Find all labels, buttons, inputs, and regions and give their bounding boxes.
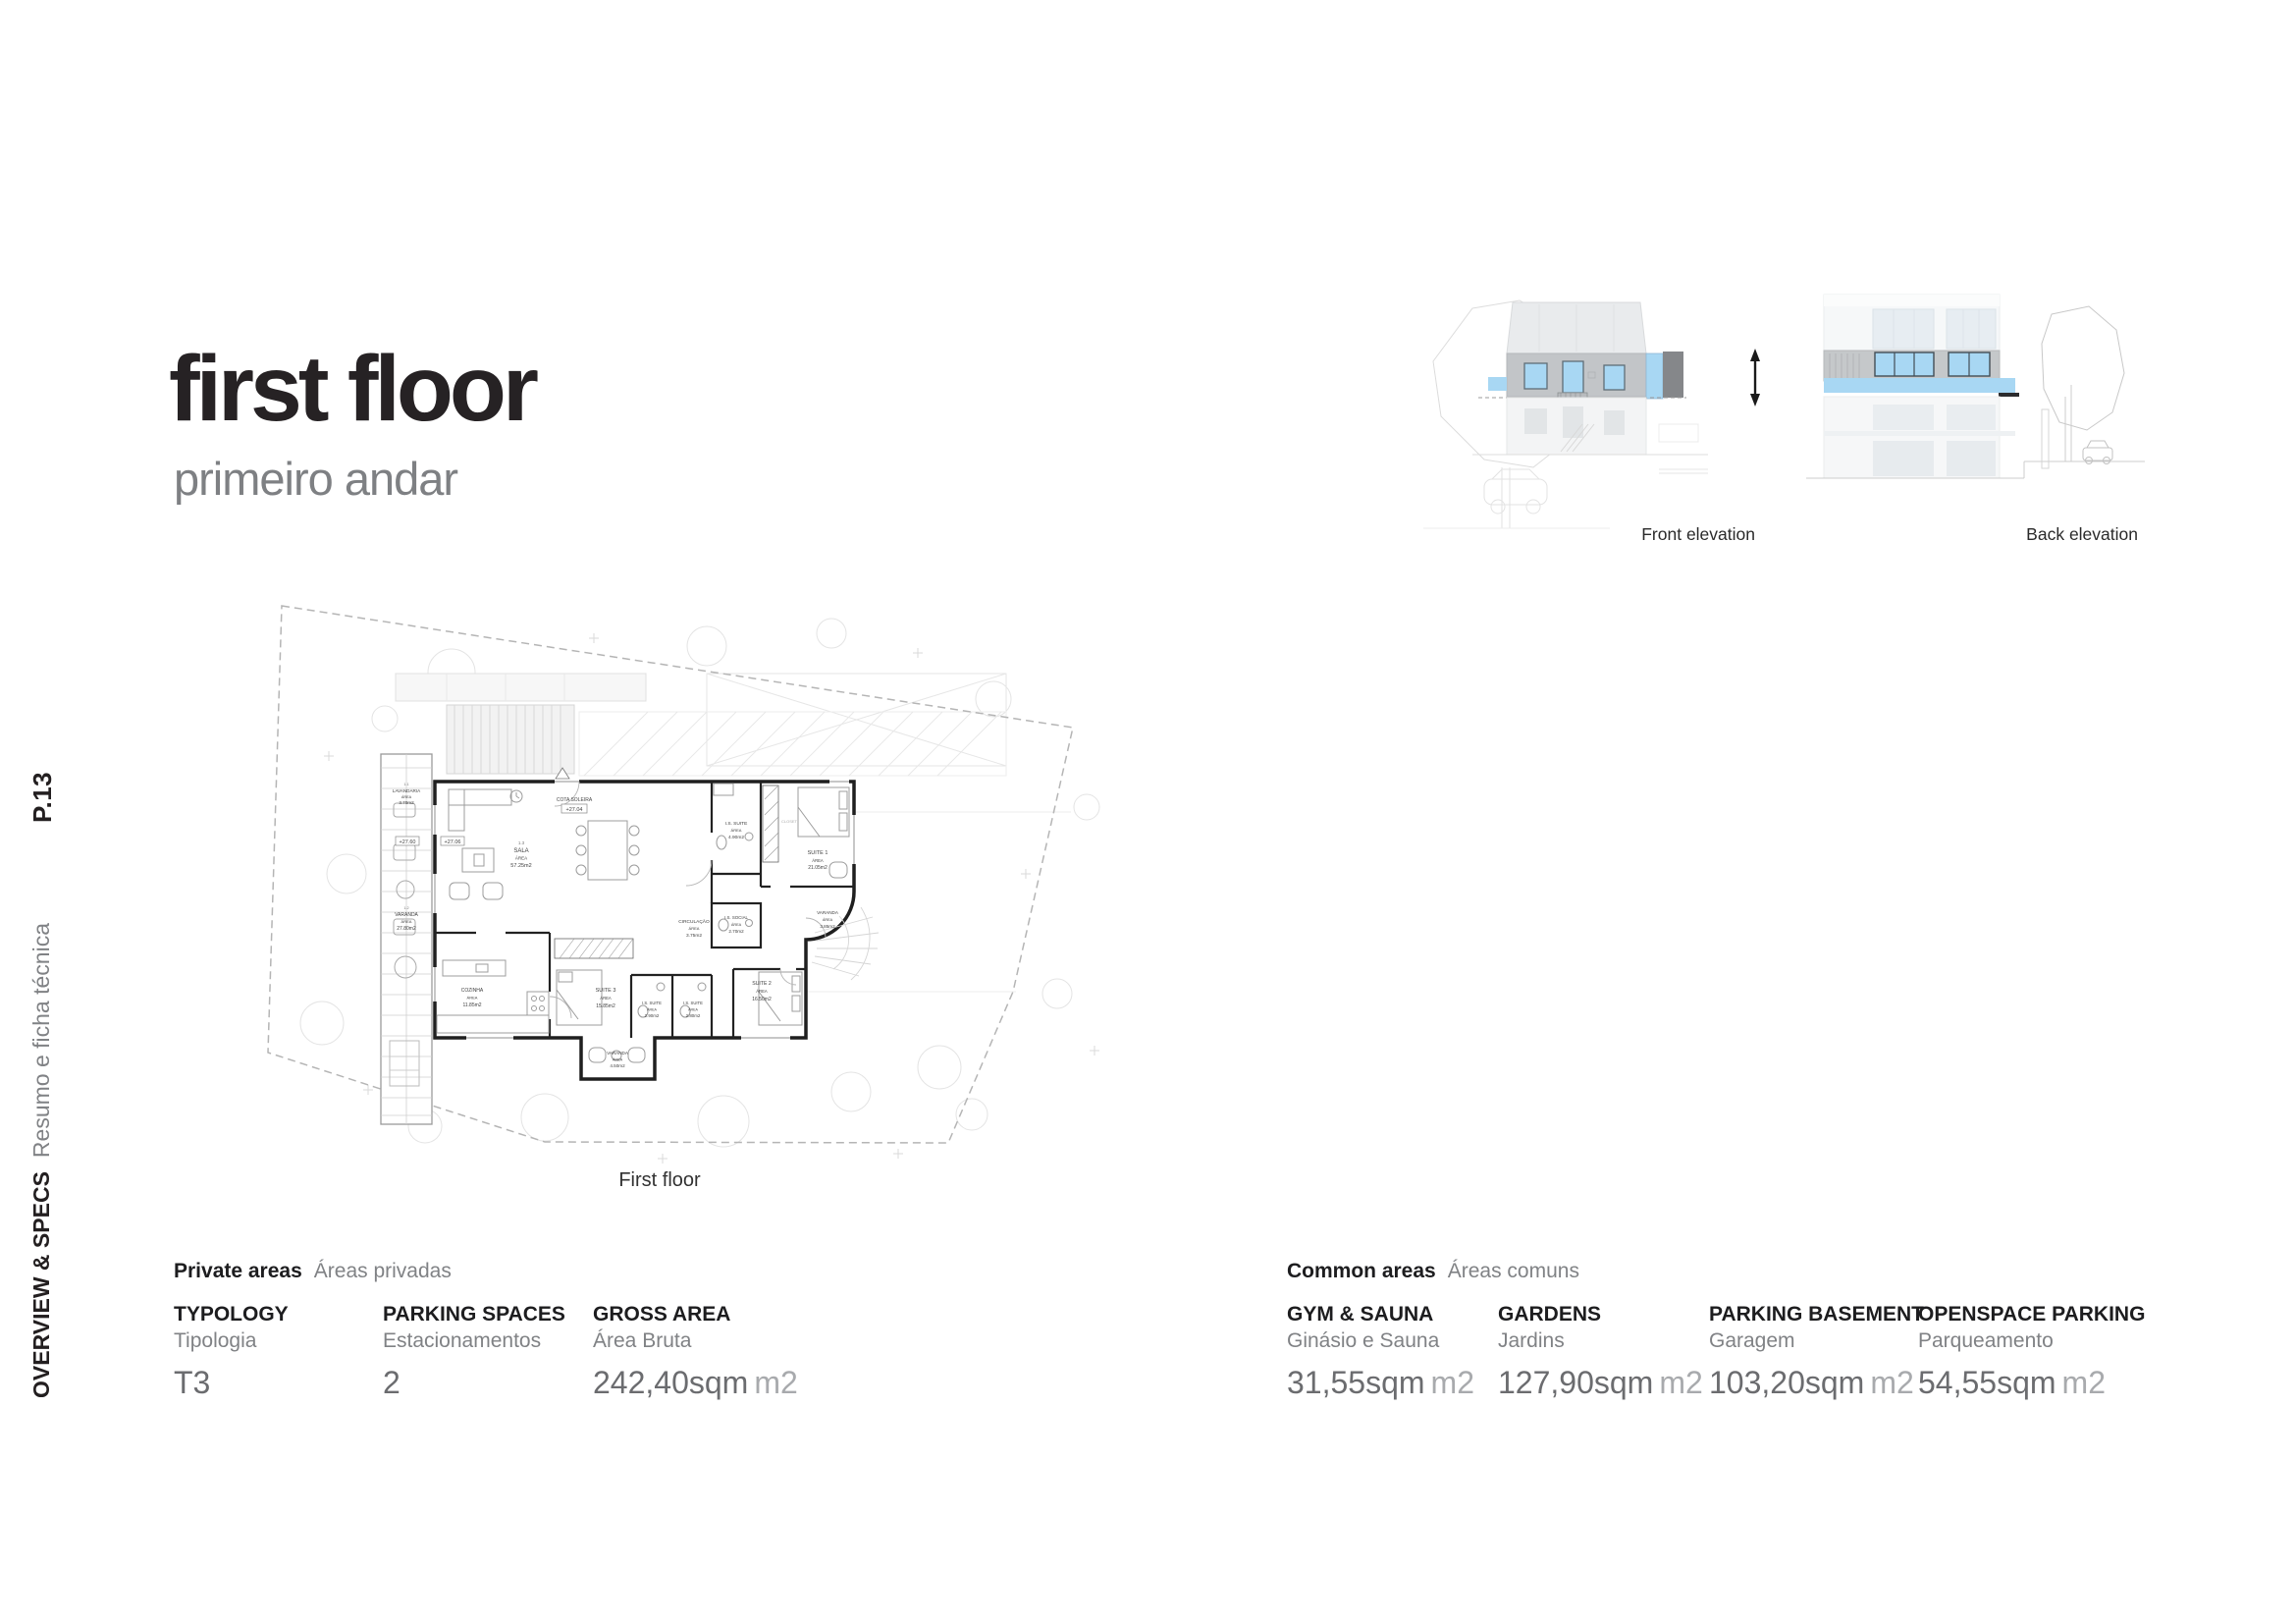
svg-text:1.2: 1.2: [403, 906, 408, 910]
height-arrow-icon: [1750, 349, 1760, 406]
spec-label: GROSS AREA: [593, 1303, 868, 1326]
spec-value: 2: [383, 1365, 593, 1401]
spec-sublabel: Estacionamentos: [383, 1329, 593, 1353]
private-areas-title: Private areas: [174, 1260, 302, 1282]
level-tag: +27.60: [400, 839, 416, 845]
cota-label: COTA SOLEIRA: [557, 797, 593, 803]
svg-text:ÁREA: ÁREA: [401, 795, 412, 799]
back-elevation-label: Back elevation: [1942, 524, 2138, 545]
svg-text:11.85m2: 11.85m2: [462, 1002, 481, 1008]
svg-text:SALA: SALA: [513, 848, 528, 854]
spec-label: GYM & SAUNA: [1287, 1303, 1498, 1326]
svg-text:2.70m2: 2.70m2: [728, 929, 744, 934]
spec-value: 103,20sqmm2: [1709, 1365, 1918, 1401]
private-areas-section: Private areasÁreas privadas TYPOLOGY Tip…: [174, 1260, 868, 1401]
spec-sublabel: Tipologia: [174, 1329, 383, 1353]
svg-text:ÁREA: ÁREA: [812, 858, 824, 863]
svg-text:27.80m2: 27.80m2: [397, 926, 416, 932]
apartment-outline: [435, 782, 854, 1079]
svg-text:ÁREA: ÁREA: [647, 1008, 657, 1012]
common-areas-title: Common areas: [1287, 1260, 1436, 1282]
common-areas-section: Common areasÁreas comuns GYM & SAUNA Gin…: [1287, 1260, 2154, 1401]
svg-text:ÁREA: ÁREA: [401, 919, 412, 924]
sidebar-section-title: OVERVIEW & SPECS: [28, 1171, 54, 1398]
common-areas-header: Common areasÁreas comuns: [1287, 1260, 2154, 1283]
spec-label: OPENSPACE PARKING: [1918, 1303, 2154, 1326]
svg-text:SUITE 3: SUITE 3: [596, 988, 616, 994]
spec-label: PARKING BASEMENT: [1709, 1303, 1918, 1326]
back-elevation-drawing: [1806, 287, 2150, 527]
svg-text:CIRCULAÇÃO: CIRCULAÇÃO: [678, 918, 710, 925]
svg-text:I.S. SUITE: I.S. SUITE: [683, 1001, 703, 1005]
spec-label: PARKING SPACES: [383, 1303, 593, 1326]
sidebar-section-subtitle: Resumo e ficha técnica: [28, 923, 54, 1158]
front-building: [1472, 302, 1708, 455]
left-balcony-strip: [381, 754, 432, 1124]
svg-text:VARANDA: VARANDA: [607, 1051, 629, 1056]
spec-label: TYPOLOGY: [174, 1303, 383, 1326]
svg-text:16.50m2: 16.50m2: [752, 997, 772, 1002]
svg-text:2.90m2: 2.90m2: [645, 1013, 660, 1018]
site-structures: [396, 674, 1006, 776]
private-areas-header: Private areasÁreas privadas: [174, 1260, 868, 1283]
svg-text:ÁREA: ÁREA: [756, 989, 768, 994]
spec-value: 127,90sqmm2: [1498, 1365, 1709, 1401]
svg-text:ÁREA: ÁREA: [731, 923, 742, 927]
svg-text:4.90m2: 4.90m2: [728, 835, 744, 840]
spec-openspace-parking: OPENSPACE PARKING Parqueamento 54,55sqmm…: [1918, 1303, 2154, 1401]
spec-value: T3: [174, 1365, 383, 1401]
page-title: first floor: [169, 338, 535, 440]
svg-text:2.80m2: 2.80m2: [686, 1013, 701, 1018]
svg-text:ÁREA: ÁREA: [613, 1058, 623, 1062]
front-elevation-drawing: [1414, 287, 1767, 527]
svg-text:ÁREA: ÁREA: [689, 926, 700, 931]
svg-text:ÁREA: ÁREA: [731, 828, 742, 833]
svg-text:3.85m2: 3.85m2: [820, 924, 835, 929]
svg-text:SUITE 1: SUITE 1: [808, 850, 828, 856]
svg-text:VARANDA: VARANDA: [817, 910, 839, 915]
svg-text:SUITE 2: SUITE 2: [752, 981, 772, 987]
page-subtitle: primeiro andar: [174, 452, 457, 506]
front-elevation-label: Front elevation: [1559, 524, 1755, 545]
private-areas-subtitle: Áreas privadas: [314, 1260, 452, 1282]
spec-sublabel: Área Bruta: [593, 1329, 868, 1353]
spec-value: 31,55sqmm2: [1287, 1365, 1498, 1401]
brochure-page: P.13 OVERVIEW & SPECSResumo e ficha técn…: [0, 0, 2296, 1624]
spec-gross-area: GROSS AREA Área Bruta 242,40sqmm2: [593, 1303, 868, 1401]
svg-text:ÁREA: ÁREA: [600, 996, 612, 1001]
exterior-stair: [447, 705, 574, 774]
svg-text:4.50m2: 4.50m2: [610, 1063, 625, 1068]
svg-text:ÁREA: ÁREA: [823, 918, 833, 922]
svg-text:ÁREA: ÁREA: [467, 996, 478, 1001]
page-number: P.13: [27, 772, 57, 823]
spec-label: GARDENS: [1498, 1303, 1709, 1326]
spec-gym-sauna: GYM & SAUNA Ginásio e Sauna 31,55sqmm2: [1287, 1303, 1498, 1401]
level-tag: +27.06: [445, 839, 461, 845]
spec-gardens: GARDENS Jardins 127,90sqmm2: [1498, 1303, 1709, 1401]
back-tree: [2042, 306, 2124, 468]
spec-sublabel: Garagem: [1709, 1329, 1918, 1353]
spec-sublabel: Ginásio e Sauna: [1287, 1329, 1498, 1353]
spec-typology: TYPOLOGY Tipologia T3: [174, 1303, 383, 1401]
spec-sublabel: Jardins: [1498, 1329, 1709, 1353]
svg-text:1.1: 1.1: [403, 783, 408, 786]
spec-value: 242,40sqmm2: [593, 1365, 868, 1401]
svg-text:I.S. SOCIAL: I.S. SOCIAL: [724, 915, 748, 920]
svg-text:COZINHA: COZINHA: [461, 988, 484, 994]
spec-sublabel: Parqueamento: [1918, 1329, 2154, 1353]
svg-text:57.25m2: 57.25m2: [510, 863, 531, 869]
svg-text:VARANDA: VARANDA: [395, 912, 418, 918]
spec-parking-spaces: PARKING SPACES Estacionamentos 2: [383, 1303, 593, 1401]
spec-parking-basement: PARKING BASEMENT Garagem 103,20sqmm2: [1709, 1303, 1918, 1401]
svg-text:LAVANDARIA: LAVANDARIA: [393, 788, 421, 793]
room-label-closet: CLOSET: [781, 819, 798, 824]
svg-text:ÁREA: ÁREA: [515, 855, 527, 861]
svg-text:21.05m2: 21.05m2: [808, 865, 828, 871]
common-areas-subtitle: Áreas comuns: [1448, 1260, 1579, 1282]
svg-text:3.75m2: 3.75m2: [686, 933, 702, 939]
svg-text:15.85m2: 15.85m2: [596, 1003, 615, 1009]
svg-text:1.3: 1.3: [518, 840, 525, 845]
svg-text:3.70m2: 3.70m2: [399, 800, 414, 805]
plan-caption: First floor: [552, 1169, 768, 1192]
back-building: [1806, 295, 2145, 478]
cota-value: +27.04: [566, 807, 583, 813]
svg-text:I.S. SUITE: I.S. SUITE: [725, 821, 748, 827]
spec-value: 54,55sqmm2: [1918, 1365, 2154, 1401]
sidebar-section: OVERVIEW & SPECSResumo e ficha técnica: [27, 923, 56, 1398]
svg-text:ÁREA: ÁREA: [688, 1008, 698, 1012]
back-car-sketch: [2083, 441, 2112, 464]
svg-text:I.S. SUITE: I.S. SUITE: [642, 1001, 662, 1005]
floor-plan-drawing: +27.60 +27.06 COTA SOLEIRA +27.04 1.1 LA…: [250, 579, 1114, 1188]
